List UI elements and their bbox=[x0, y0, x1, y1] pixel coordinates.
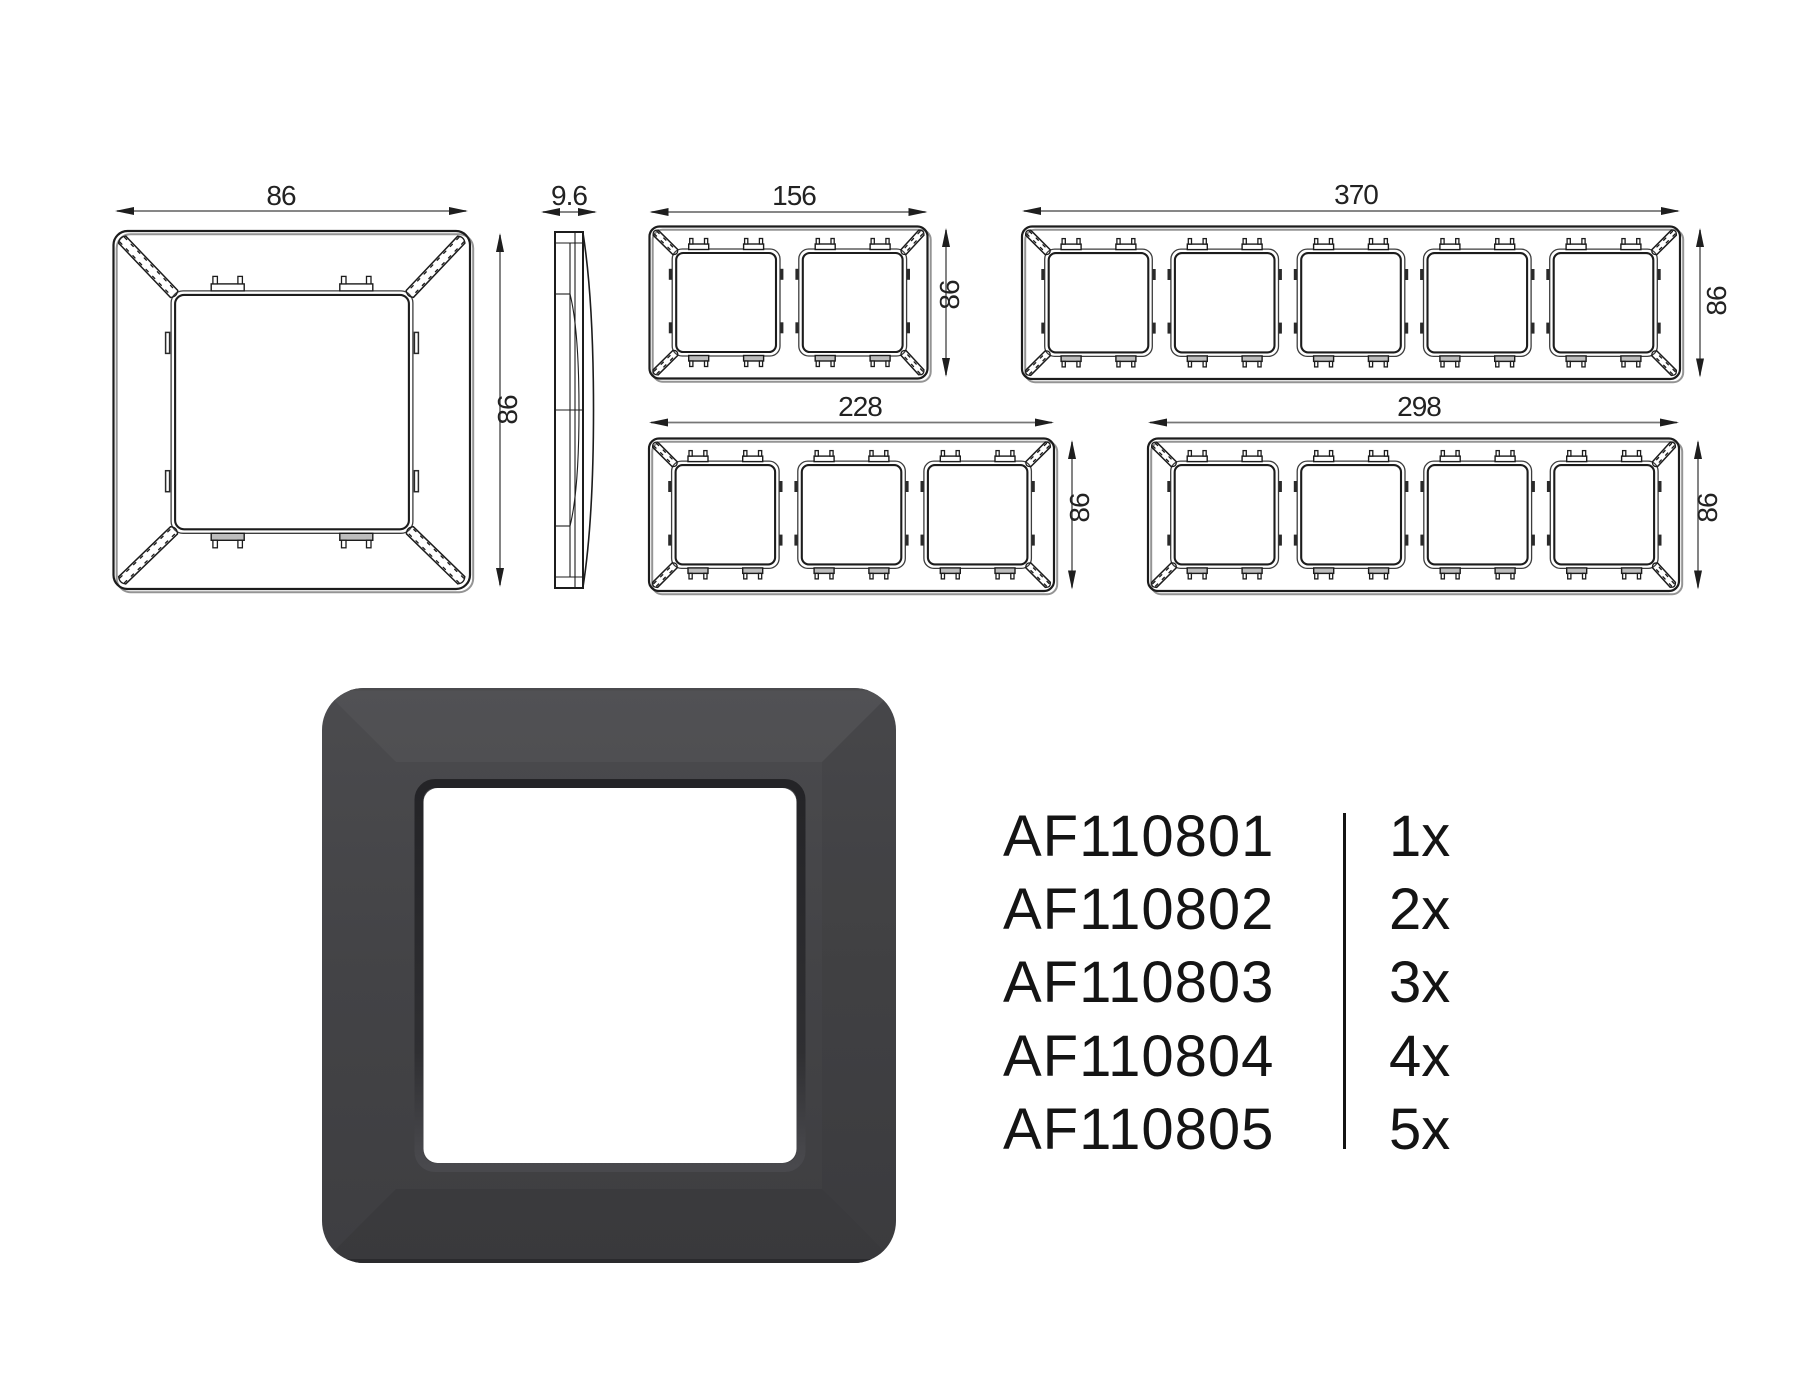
svg-text:86: 86 bbox=[934, 280, 965, 310]
svg-text:AF110802: AF110802 bbox=[1003, 877, 1274, 942]
svg-text:4x: 4x bbox=[1389, 1024, 1450, 1089]
svg-text:86: 86 bbox=[492, 395, 523, 425]
svg-text:3x: 3x bbox=[1389, 950, 1450, 1015]
svg-text:370: 370 bbox=[1334, 179, 1378, 210]
svg-text:298: 298 bbox=[1397, 391, 1441, 422]
svg-text:5x: 5x bbox=[1389, 1097, 1450, 1162]
svg-text:AF110805: AF110805 bbox=[1003, 1097, 1274, 1162]
svg-text:2x: 2x bbox=[1389, 877, 1450, 942]
svg-text:86: 86 bbox=[1701, 286, 1732, 316]
svg-text:AF110801: AF110801 bbox=[1003, 804, 1274, 869]
svg-text:86: 86 bbox=[1064, 493, 1095, 523]
svg-text:228: 228 bbox=[838, 391, 882, 422]
svg-text:AF110804: AF110804 bbox=[1003, 1024, 1274, 1089]
svg-text:86: 86 bbox=[266, 180, 296, 211]
svg-text:1x: 1x bbox=[1389, 804, 1450, 869]
svg-text:156: 156 bbox=[772, 180, 816, 211]
svg-text:9.6: 9.6 bbox=[551, 180, 587, 211]
svg-text:86: 86 bbox=[1692, 493, 1723, 523]
svg-text:AF110803: AF110803 bbox=[1003, 950, 1274, 1015]
